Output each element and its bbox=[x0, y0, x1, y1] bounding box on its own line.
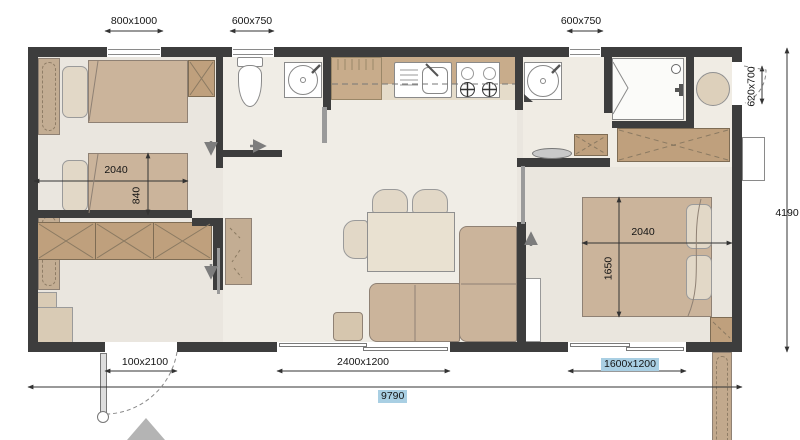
fridge bbox=[331, 57, 382, 100]
seat-cushion bbox=[38, 58, 60, 135]
headboard bbox=[712, 352, 732, 440]
bedside-cabinet bbox=[574, 134, 608, 156]
entry-door-opening bbox=[105, 342, 177, 352]
round-basin bbox=[696, 72, 730, 106]
burner-icon bbox=[460, 82, 475, 97]
desk bbox=[525, 278, 541, 342]
wall-kitchen-end bbox=[515, 57, 523, 110]
dim-top-window-3: 600x750 bbox=[541, 15, 621, 28]
wall-wc-right bbox=[323, 47, 331, 110]
kitchen-sink bbox=[394, 62, 452, 98]
exterior-box bbox=[742, 137, 765, 181]
wall-shower-left bbox=[604, 57, 612, 113]
wall bbox=[28, 47, 105, 57]
single-bed bbox=[88, 60, 188, 123]
burner-icon bbox=[461, 67, 474, 80]
dim-twin-bed-width: 840 bbox=[131, 170, 144, 222]
dining-table bbox=[367, 212, 455, 272]
pillow bbox=[62, 66, 88, 118]
window-top-1 bbox=[105, 47, 163, 57]
wall-wc-left bbox=[216, 47, 223, 168]
entry-marker-triangle bbox=[127, 418, 165, 440]
window-pane bbox=[570, 343, 630, 347]
tv bbox=[532, 148, 572, 159]
drain-icon bbox=[540, 78, 546, 84]
wall bbox=[450, 342, 568, 352]
drain-icon bbox=[300, 77, 306, 83]
window-pane bbox=[626, 347, 684, 351]
bedside-cabinet bbox=[188, 60, 215, 97]
side-door-opening bbox=[732, 62, 742, 105]
chair bbox=[372, 189, 408, 214]
sliding-door-hall bbox=[217, 248, 220, 294]
wall bbox=[28, 342, 105, 352]
wall-shower-right bbox=[686, 57, 694, 128]
sink-basin bbox=[422, 67, 448, 94]
shower-mixer-icon bbox=[675, 88, 680, 92]
sliding-door-bedroom bbox=[521, 166, 525, 224]
window-top-2 bbox=[230, 47, 276, 57]
bench bbox=[37, 292, 57, 308]
dim-top-window-1: 800x1000 bbox=[94, 15, 174, 28]
ottoman bbox=[333, 312, 363, 341]
chair bbox=[412, 189, 448, 214]
window-bedroom bbox=[568, 342, 686, 352]
dim-side-door: 620x700 bbox=[746, 61, 759, 113]
dim-living-window: 2400x1200 bbox=[323, 356, 403, 369]
wall bbox=[28, 47, 38, 352]
pillow bbox=[686, 204, 712, 249]
burner-icon bbox=[483, 67, 496, 80]
dim-double-bed-depth: 1650 bbox=[603, 243, 616, 295]
sliding-door-wc bbox=[322, 107, 327, 143]
dim-bedroom-window: 1600x1200 bbox=[601, 358, 659, 371]
entry-door-hinge bbox=[97, 411, 109, 423]
hall-wardrobe bbox=[37, 222, 212, 260]
wall bbox=[732, 105, 742, 352]
bedside-cabinet bbox=[710, 317, 733, 343]
sofa-chaise bbox=[459, 226, 517, 342]
wall-wc-bottom bbox=[223, 150, 282, 157]
dim-top-window-2: 600x750 bbox=[212, 15, 292, 28]
wall bbox=[276, 47, 567, 57]
window-pane bbox=[363, 347, 448, 351]
window-pane bbox=[279, 343, 367, 347]
window-living bbox=[277, 342, 450, 352]
wall-shower-bottom bbox=[612, 121, 694, 128]
master-wardrobe bbox=[617, 128, 730, 162]
shower-head-icon bbox=[671, 64, 681, 74]
pillow bbox=[62, 160, 88, 212]
chair bbox=[343, 220, 368, 259]
wall-bedroom bbox=[517, 222, 526, 342]
dim-overall-depth: 4190 bbox=[767, 207, 800, 220]
tall-cabinet bbox=[225, 218, 252, 285]
wall bbox=[732, 47, 742, 62]
dim-overall-length: 9790 bbox=[378, 390, 407, 403]
wall bbox=[177, 342, 277, 352]
dim-entry-door: 100x2100 bbox=[105, 356, 185, 369]
bench bbox=[37, 307, 73, 343]
wall-tv bbox=[517, 158, 610, 167]
pillow bbox=[686, 255, 712, 300]
window-top-3 bbox=[567, 47, 603, 57]
burner-icon bbox=[482, 82, 497, 97]
floor-plan: 800x1000 600x750 600x750 620x700 4190 20… bbox=[0, 0, 800, 440]
wall bbox=[603, 47, 742, 57]
wall-hall-top bbox=[28, 210, 192, 218]
dim-double-bed-width: 2040 bbox=[613, 226, 673, 239]
sofa-seat bbox=[369, 283, 460, 342]
